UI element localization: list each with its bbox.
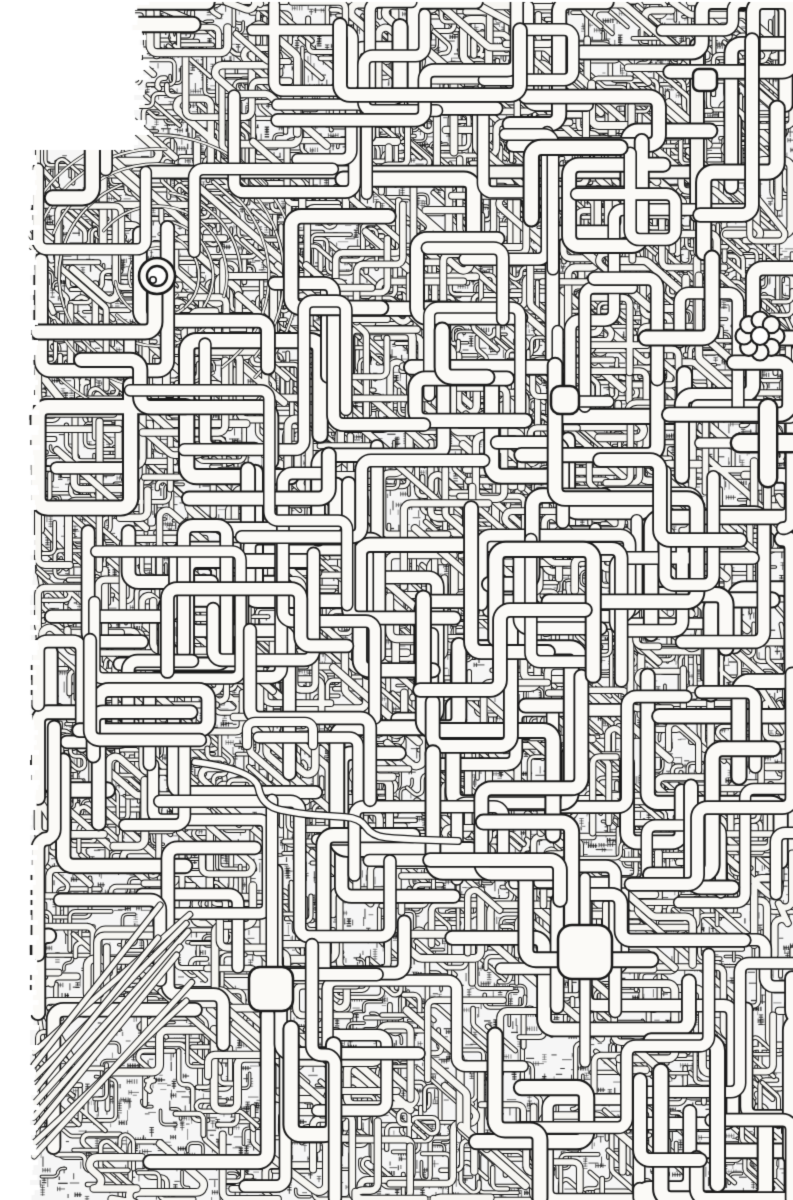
scanned-artwork-page — [0, 0, 793, 1200]
pipe-maze-drawing — [0, 0, 793, 1200]
ink-drawing-figure — [0, 0, 793, 1200]
